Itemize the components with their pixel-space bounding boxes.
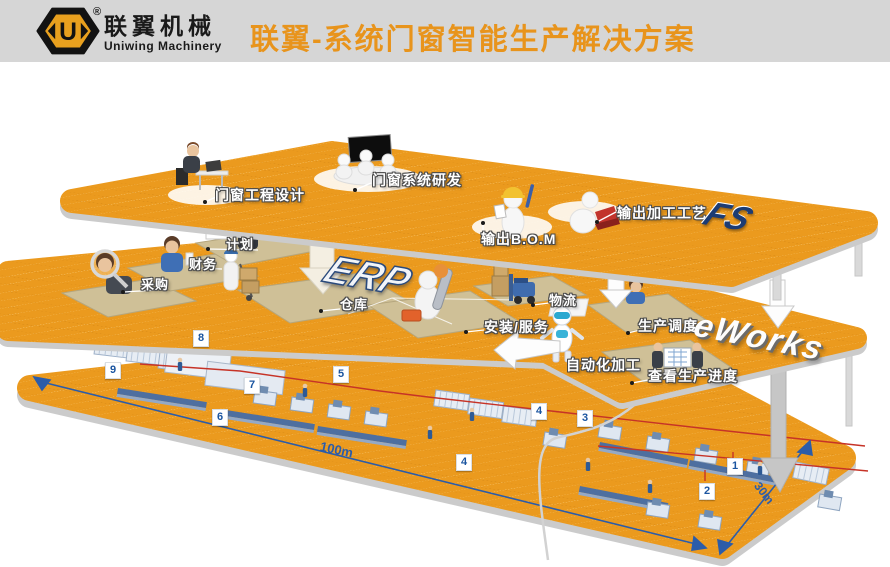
marker-8: 8 [193, 330, 209, 347]
marker-4b: 4 [456, 454, 472, 471]
marker-1: 1 [727, 458, 743, 475]
marker-7: 7 [244, 377, 260, 394]
brand-name-en: Uniwing Machinery [104, 39, 222, 53]
label-engineering: 门窗工程设计 [215, 185, 305, 205]
logo-letter: U [59, 19, 77, 46]
marker-9: 9 [105, 362, 121, 379]
label-purchase: 采购 [141, 274, 169, 293]
label-plan: 计划 [226, 234, 254, 253]
poster-title: 联翼-系统门窗智能生产解决方案 [250, 16, 696, 58]
label-dispatch: 生产调度 [638, 316, 698, 336]
brand-name-cn: 联翼机械 [104, 14, 222, 39]
marker-6: 6 [212, 409, 228, 426]
label-install: 安装/服务 [484, 317, 549, 337]
label-rnd: 门窗系统研发 [372, 170, 462, 190]
label-warehouse: 仓库 [340, 294, 368, 313]
registered-mark: ® [93, 6, 101, 18]
label-process: 输出加工工艺 [617, 203, 707, 223]
marker-4a: 4 [531, 403, 547, 420]
marker-2: 2 [699, 483, 715, 500]
header-bar: U ® 联翼机械 Uniwing Machinery 联翼-系统门窗智能生产解决… [0, 0, 890, 62]
brand-block: 联翼机械 Uniwing Machinery [104, 14, 222, 53]
label-progress: 查看生产进度 [648, 366, 738, 386]
label-bom: 输出B.O.M [481, 229, 556, 249]
marker-5: 5 [333, 366, 349, 383]
label-automation: 自动化加工 [566, 355, 641, 375]
poster: U ® 联翼机械 Uniwing Machinery 联翼-系统门窗智能生产解决… [0, 0, 890, 567]
label-finance: 财务 [189, 254, 217, 273]
uniwing-logo: U [36, 6, 100, 56]
marker-3: 3 [577, 410, 593, 427]
label-logistics: 物流 [549, 290, 577, 309]
